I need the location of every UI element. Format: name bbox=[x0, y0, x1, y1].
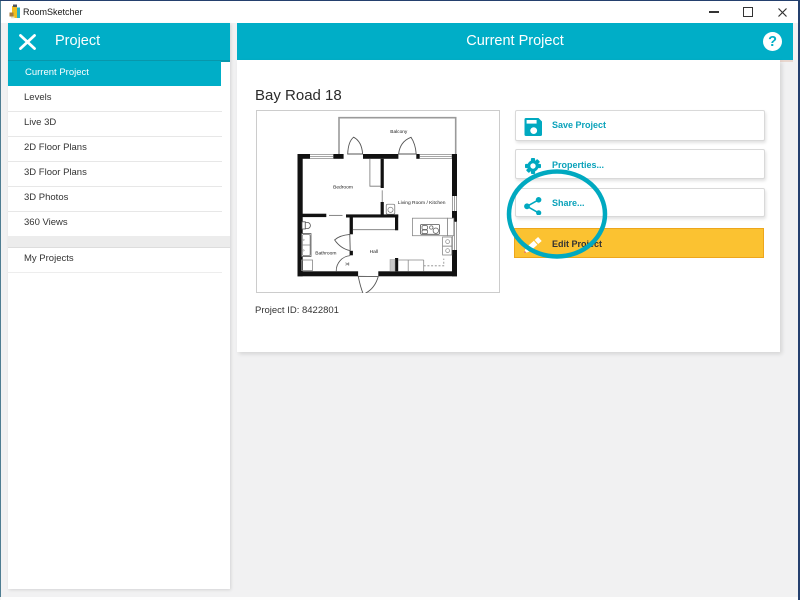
svg-text:Bedroom: Bedroom bbox=[333, 184, 353, 190]
svg-text:Living Room / Kitchen: Living Room / Kitchen bbox=[398, 200, 446, 206]
svg-text:Balcony: Balcony bbox=[390, 129, 408, 135]
svg-text:Hall: Hall bbox=[370, 249, 378, 255]
svg-text:Bathroom: Bathroom bbox=[315, 250, 336, 256]
